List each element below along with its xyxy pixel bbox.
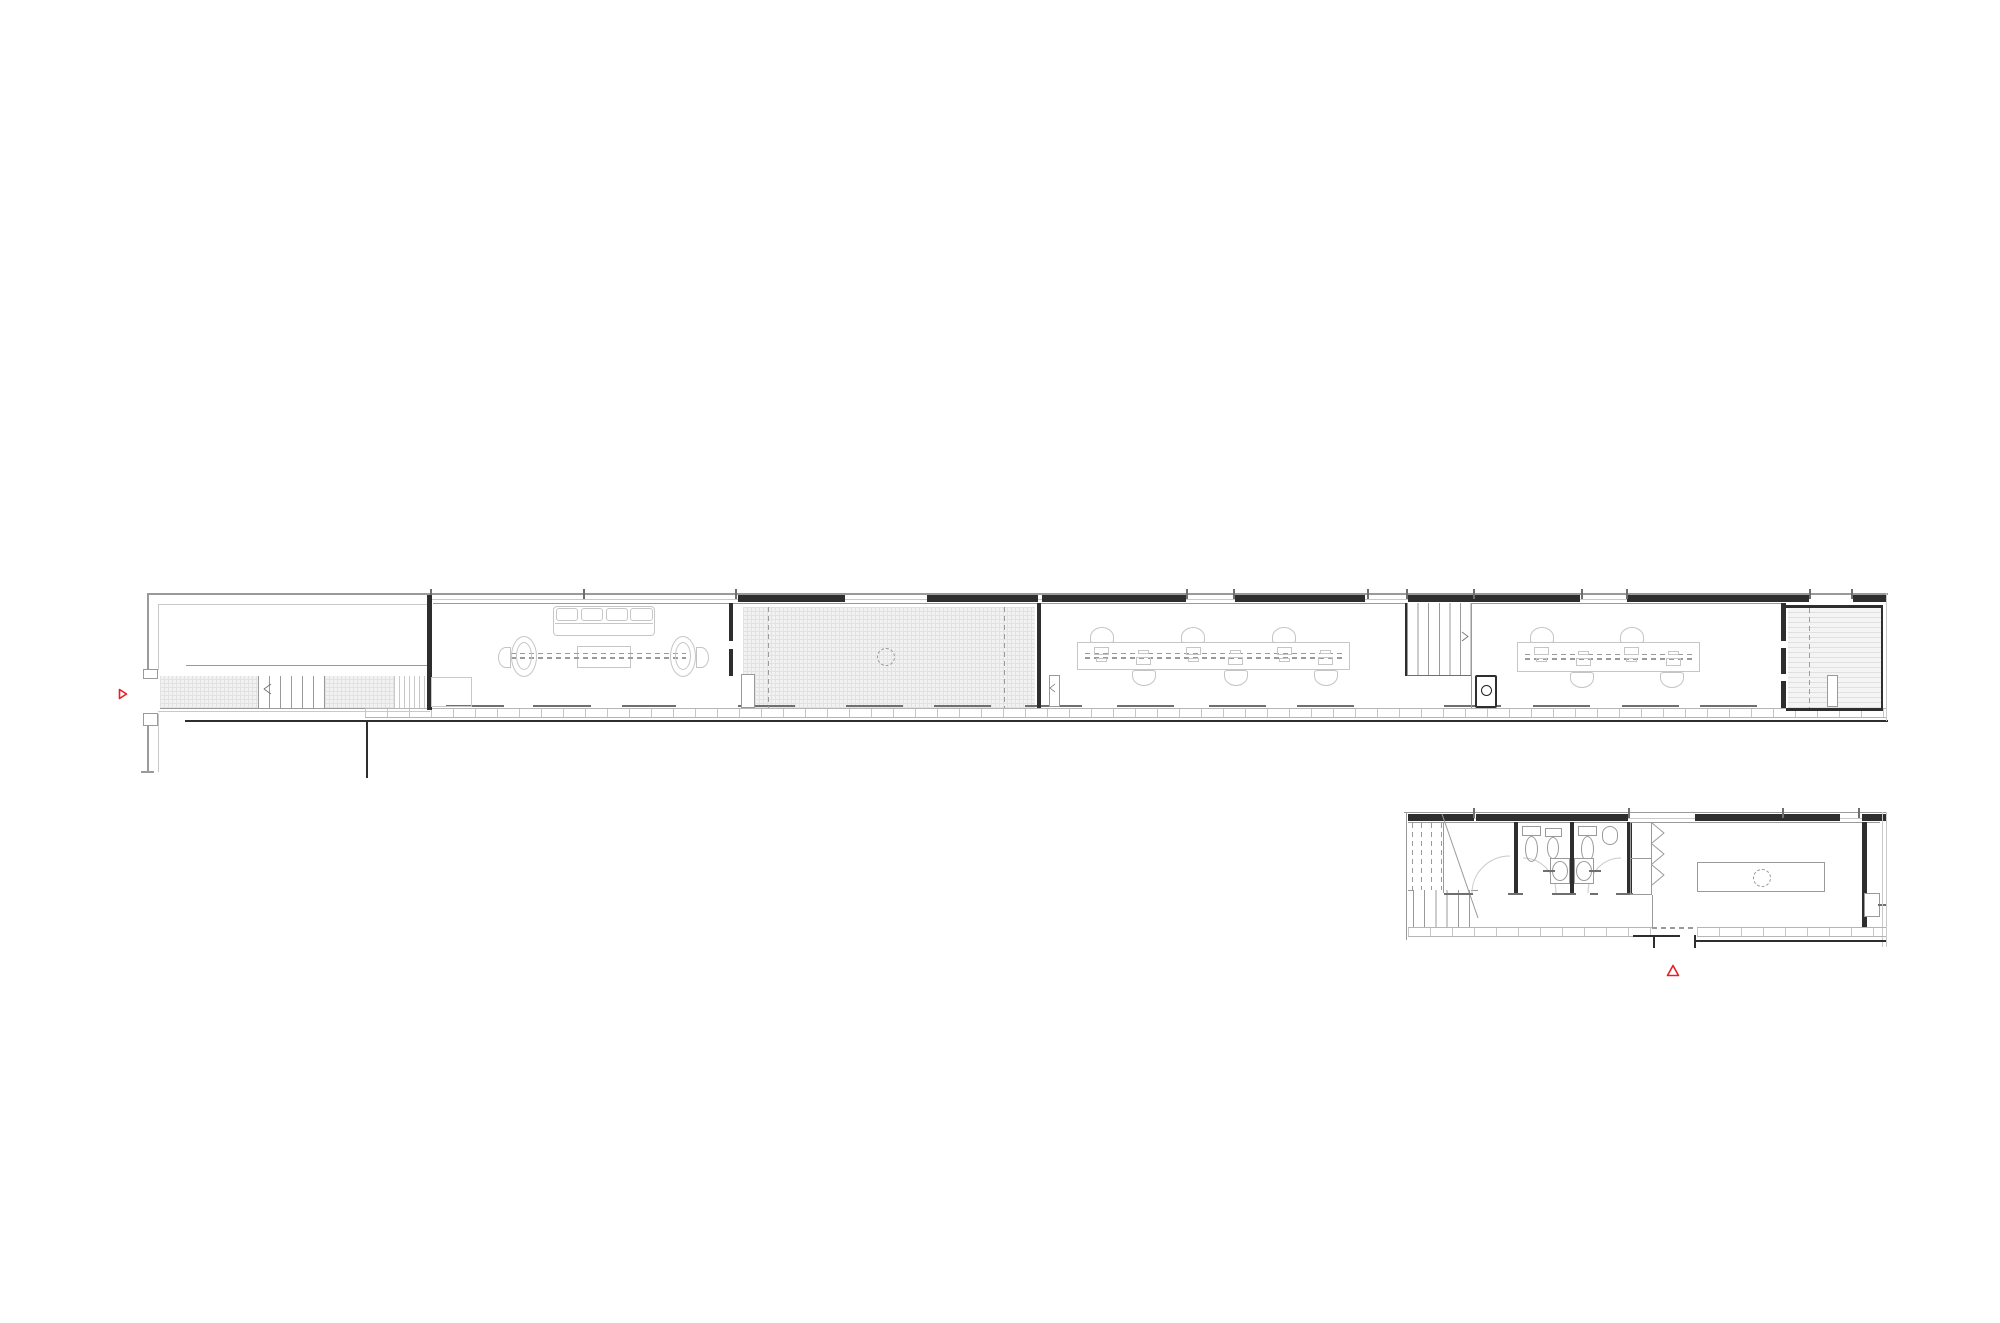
left-wall-end-cap <box>141 771 154 773</box>
frag-bottom-wall-3 <box>1552 893 1576 895</box>
court-left-wall-outer-upper <box>147 595 149 670</box>
wall-lounge-courtyard-upper <box>729 603 733 641</box>
wc1-toilet-1-tank <box>1522 826 1541 836</box>
office1-monitor-4-kb <box>1138 650 1149 654</box>
entry-jamb-upper <box>143 669 158 679</box>
deck-door-leaf <box>1827 675 1838 707</box>
sofa-cushion-2 <box>581 608 603 621</box>
office1-monitor-4-screen <box>1136 657 1151 665</box>
frag-stair-dash-1 <box>1412 823 1413 890</box>
office1-chair-2 <box>1181 627 1205 643</box>
frag-stair-dash-3 <box>1431 823 1432 890</box>
entry-mat <box>431 677 472 707</box>
paver-band <box>365 708 1886 718</box>
mullion-4 <box>1186 589 1188 599</box>
section-marker-bottom <box>1666 964 1680 977</box>
office2-chair-4 <box>1660 672 1684 688</box>
door-track-12 <box>1533 705 1590 708</box>
office1-monitor-6-kb <box>1320 650 1331 654</box>
door-track-14 <box>1700 705 1757 708</box>
wc2-toilet-1-tank <box>1578 826 1597 836</box>
mullion-3 <box>735 589 737 599</box>
entry-stair-arrow <box>264 684 271 694</box>
frag-mullion-4 <box>1858 808 1860 818</box>
lounge-chair-right-inner <box>675 642 691 670</box>
corridor-hatch-east <box>325 676 394 708</box>
mullion-7 <box>1406 589 1408 599</box>
office1-monitor-1-screen <box>1094 647 1109 655</box>
door-track-8 <box>1117 705 1174 708</box>
courtyard-roof-dash-east <box>1004 607 1005 708</box>
sofa-cushion-1 <box>556 608 578 621</box>
hall-door-arc <box>1472 856 1510 893</box>
door-track-2 <box>533 705 591 708</box>
wall-office2-deck-lower <box>1781 681 1786 708</box>
office1-monitor-5-kb <box>1230 650 1241 654</box>
mid-stair-right-line <box>1471 603 1472 708</box>
frag-window-bar-3 <box>1695 814 1840 821</box>
window-bar-6 <box>1627 595 1809 602</box>
outer-right-line <box>1886 593 1887 721</box>
kitchen-cabinet-divider <box>1630 858 1652 859</box>
deck-right-edge <box>1881 605 1884 710</box>
below-cabinet-line <box>1652 895 1653 927</box>
office2-desk-dash-1 <box>1525 654 1692 656</box>
building-baseline <box>185 720 1888 722</box>
frag-garden-wall-v1 <box>1653 935 1655 948</box>
office1-chair-5 <box>1224 670 1248 686</box>
mullion-8 <box>1473 589 1475 599</box>
office2-monitor-3-screen <box>1576 658 1591 666</box>
frag-mullion-2 <box>1628 808 1630 818</box>
office1-monitor-6-screen <box>1318 657 1333 665</box>
stove-flue-circle <box>1481 685 1492 696</box>
mullion-11 <box>1809 589 1811 599</box>
lounge-stool-left <box>498 647 511 668</box>
deck-roof-dash <box>1809 608 1810 708</box>
door-track-3 <box>622 705 676 708</box>
frag-paver-band-west <box>1408 927 1652 937</box>
office1-desk-dash-1 <box>1085 653 1342 655</box>
section-marker-left <box>118 688 128 700</box>
frag-paver-band-east <box>1697 927 1886 937</box>
mullion-12 <box>1851 589 1853 599</box>
window-bar-3 <box>1042 595 1186 602</box>
frag-hall-left-wall <box>1443 822 1444 893</box>
entry-ramp-stripes <box>394 676 427 708</box>
door-track-6 <box>934 705 991 708</box>
office1-chair-6 <box>1314 670 1338 686</box>
mullion-6 <box>1367 589 1369 599</box>
mullion-9 <box>1581 589 1583 599</box>
court-inner-top-line <box>158 604 427 605</box>
frag-outer-right-2 <box>1886 812 1887 947</box>
sofa-seat-line <box>555 623 653 624</box>
entry-jamb-lower <box>143 713 158 726</box>
frag-mullion-3 <box>1782 808 1784 818</box>
court-left-wall-inner-lower <box>158 714 159 772</box>
frag-bottom-wall-2 <box>1508 893 1523 895</box>
office2-monitor-4-screen <box>1666 658 1681 666</box>
sofa-cushion-4 <box>630 608 653 621</box>
office1-monitor-3-screen <box>1277 647 1292 655</box>
courtyard-drain-circle <box>877 648 895 666</box>
office1-chair-4 <box>1132 670 1156 686</box>
lounge-chair-left-inner <box>516 642 532 670</box>
office2-chair-2 <box>1620 627 1644 643</box>
kitchen-island-circle <box>1753 869 1771 887</box>
wc1-basin-tap <box>1543 870 1555 872</box>
frag-baseline-east <box>1694 940 1886 942</box>
courtyard-door-jamb-west <box>741 674 755 708</box>
floor-plan-canvas <box>0 0 2000 1323</box>
frag-bottom-wall-4 <box>1590 893 1598 895</box>
office2-chair-3 <box>1570 672 1594 688</box>
office1-desk-dash-2 <box>1085 657 1342 659</box>
window-bar-7 <box>1853 595 1886 602</box>
deck-top-edge <box>1786 605 1883 608</box>
folding-partition-chevrons <box>1652 823 1664 885</box>
wc1-toilet-2-tank <box>1545 828 1562 837</box>
wall-office2-deck-mid <box>1781 648 1786 674</box>
wc2-basin-tap <box>1589 870 1601 872</box>
sofa-cushion-3 <box>606 608 628 621</box>
office2-monitor-2-screen <box>1624 647 1639 655</box>
wc1-toilet-2-bowl <box>1547 837 1559 859</box>
frag-left-line <box>1406 812 1407 940</box>
frag-stair-dash-2 <box>1421 823 1422 890</box>
window-bar-5 <box>1408 595 1580 602</box>
courtyard-door-arrow <box>1050 684 1055 692</box>
mid-stair-arrow <box>1462 632 1468 641</box>
office1-monitor-1-kb <box>1096 658 1107 662</box>
office1-monitor-5-screen <box>1228 657 1243 665</box>
site-step-wall <box>366 721 369 778</box>
frag-garden-wall-v2 <box>1694 935 1696 948</box>
mullion-2 <box>583 589 585 599</box>
window-bar-4 <box>1235 595 1365 602</box>
office1-monitor-2-screen <box>1186 647 1201 655</box>
wc1-toilet-1-bowl <box>1525 836 1538 862</box>
deck-bottom-edge <box>1786 708 1883 711</box>
mullion-5 <box>1233 589 1235 599</box>
door-track-9 <box>1209 705 1266 708</box>
corridor-top-line <box>186 665 427 666</box>
office1-desk <box>1077 642 1350 670</box>
mid-stair-landing-line <box>1407 675 1471 676</box>
wc2-toilet-2-wallhung <box>1602 826 1618 845</box>
frag-window-bar-2 <box>1476 814 1628 821</box>
office1-monitor-2-kb <box>1188 658 1199 662</box>
office2-monitor-1-kb <box>1536 658 1547 662</box>
office1-chair-3 <box>1272 627 1296 643</box>
corridor-hatch-west <box>160 676 258 708</box>
office1-monitor-3-kb <box>1279 658 1290 662</box>
office2-monitor-1-screen <box>1534 647 1549 655</box>
office2-chair-1 <box>1530 627 1554 643</box>
frag-garden-wall-h <box>1633 935 1680 937</box>
interior-top-line <box>433 603 1781 604</box>
frag-wall-hall-wc1 <box>1514 822 1518 895</box>
lounge-stool-right <box>696 647 709 668</box>
frag-band-gap-dash <box>1652 927 1697 929</box>
door-track-10 <box>1297 705 1354 708</box>
wall-lounge-courtyard-lower <box>729 649 733 676</box>
frag-bottom-wall-1 <box>1444 893 1473 895</box>
window-bar-2 <box>927 595 1038 602</box>
office1-chair-1 <box>1090 627 1114 643</box>
office2-monitor-2-kb <box>1626 658 1637 662</box>
office2-monitor-4-kb <box>1668 651 1679 655</box>
courtyard-roof-dash-west <box>768 607 769 708</box>
frag-top-line <box>1404 812 1887 813</box>
office2-monitor-3-kb <box>1578 651 1589 655</box>
wall-courtyard-office1 <box>1037 603 1041 708</box>
court-left-wall-inner-upper <box>158 604 159 670</box>
window-bar-1 <box>738 595 845 602</box>
mullion-10 <box>1626 589 1628 599</box>
door-track-5 <box>846 705 903 708</box>
door-track-13 <box>1622 705 1679 708</box>
wall-office2-deck-upper <box>1781 603 1786 641</box>
